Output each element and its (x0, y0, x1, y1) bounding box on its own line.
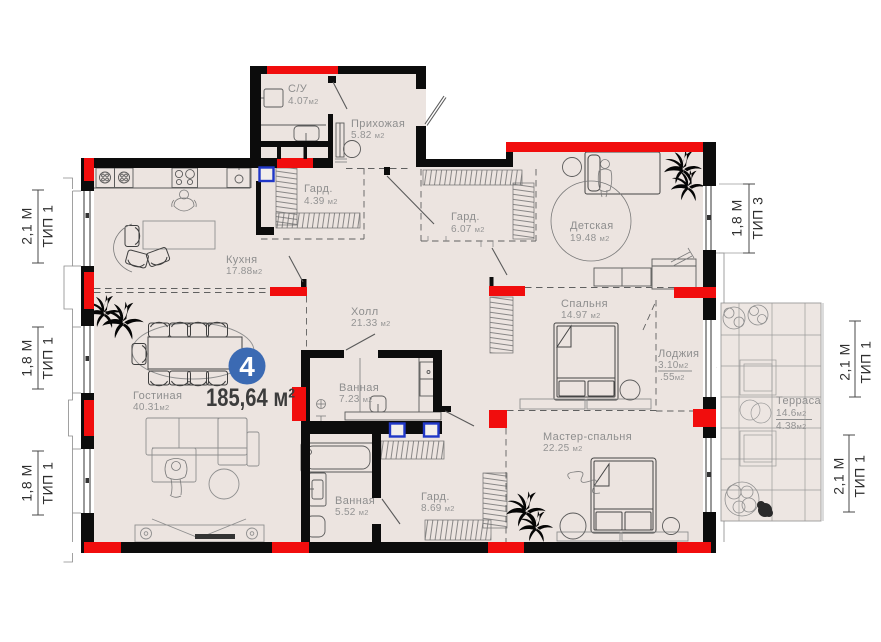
svg-text:Детская: Детская (570, 220, 614, 232)
svg-text:22.25 м2: 22.25 м2 (543, 443, 583, 454)
svg-text:4.39 м2: 4.39 м2 (304, 196, 338, 207)
svg-text:Спальня: Спальня (561, 298, 608, 310)
svg-text:6.07 м2: 6.07 м2 (451, 224, 485, 235)
svg-text:Гард.: Гард. (421, 491, 450, 503)
svg-text:1,8 М: 1,8 М (729, 199, 745, 237)
svg-text:ТИП 1: ТИП 1 (852, 455, 868, 498)
svg-text:Холл: Холл (351, 306, 379, 318)
svg-text:ТИП 1: ТИП 1 (40, 337, 56, 380)
svg-text:1,8 М: 1,8 М (19, 339, 35, 377)
svg-text:ТИП 1: ТИП 1 (40, 462, 56, 505)
svg-text:Гард.: Гард. (451, 211, 480, 223)
svg-text:4.07м2: 4.07м2 (288, 96, 319, 107)
svg-text:Мастер-спальня: Мастер-спальня (543, 431, 632, 443)
svg-text:1,8 М: 1,8 М (19, 464, 35, 502)
svg-text:14.6м2: 14.6м2 (776, 408, 807, 419)
svg-text:ТИП 1: ТИП 1 (40, 205, 56, 248)
svg-text:Ванная: Ванная (339, 382, 379, 394)
svg-text:Терраса: Терраса (776, 395, 821, 407)
svg-text:Кухня: Кухня (226, 254, 257, 266)
svg-text:ТИП 3: ТИП 3 (750, 197, 766, 240)
svg-text:ТИП 1: ТИП 1 (858, 341, 874, 384)
svg-text:3.10м2: 3.10м2 (658, 360, 689, 371)
svg-text:8.69 м2: 8.69 м2 (421, 503, 455, 514)
svg-text:2,1 М: 2,1 М (19, 207, 35, 245)
svg-text:17.88м2: 17.88м2 (226, 266, 262, 277)
svg-text:5.82 м2: 5.82 м2 (351, 130, 385, 141)
svg-text:185,64 м²: 185,64 м² (206, 384, 295, 412)
svg-text:21.33 м2: 21.33 м2 (351, 318, 391, 329)
svg-text:Гостиная: Гостиная (133, 390, 182, 402)
svg-text:2,1 М: 2,1 М (837, 343, 853, 381)
svg-text:7.23 м2: 7.23 м2 (339, 394, 373, 405)
svg-text:4: 4 (239, 351, 255, 382)
svg-text:.55м2: .55м2 (660, 372, 685, 383)
svg-text:Гард.: Гард. (304, 183, 333, 195)
svg-text:2,1 М: 2,1 М (831, 457, 847, 495)
svg-text:5.52 м2: 5.52 м2 (335, 507, 369, 518)
svg-text:Прихожая: Прихожая (351, 118, 405, 130)
svg-text:4.38м2: 4.38м2 (776, 421, 807, 432)
svg-text:14.97 м2: 14.97 м2 (561, 310, 601, 321)
svg-text:40.31м2: 40.31м2 (133, 402, 169, 413)
svg-text:19.48 м2: 19.48 м2 (570, 233, 610, 244)
svg-text:Лоджия: Лоджия (658, 348, 699, 360)
svg-text:Ванная: Ванная (335, 495, 375, 507)
svg-text:С/У: С/У (288, 83, 308, 95)
